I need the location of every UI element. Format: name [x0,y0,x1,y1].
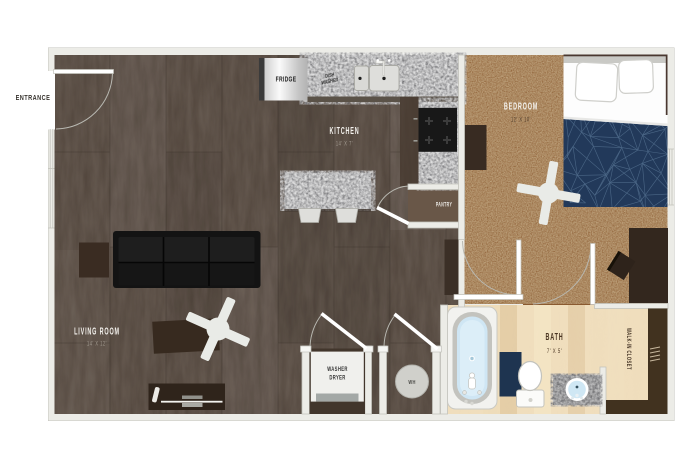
svg-text:DRYER: DRYER [329,375,345,382]
svg-text:WALK-IN CLOSET: WALK-IN CLOSET [625,328,632,370]
svg-text:14' X 7': 14' X 7' [336,141,353,148]
svg-text:KITCHEN: KITCHEN [329,124,359,137]
svg-text:WASHER: WASHER [327,366,348,373]
svg-text:LIVING ROOM: LIVING ROOM [74,324,120,337]
svg-text:BATH: BATH [545,330,563,343]
svg-text:ENTRANCE: ENTRANCE [16,94,51,102]
svg-text:PANTRY: PANTRY [436,202,452,209]
svg-text:14' X 12': 14' X 12' [87,341,107,348]
svg-text:WH: WH [408,379,415,386]
svg-text:12' X 10': 12' X 10' [511,117,531,124]
svg-text:BEDROOM: BEDROOM [504,99,538,112]
svg-text:FRIDGE: FRIDGE [276,76,297,84]
svg-text:7' X 5': 7' X 5' [547,348,562,355]
